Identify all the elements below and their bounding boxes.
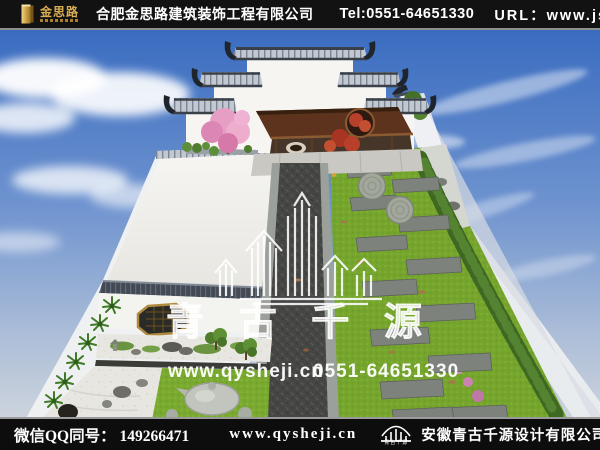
header-telephone: Tel:0551-64651330 <box>340 6 475 22</box>
logo-subline <box>40 19 80 22</box>
footer-qq: 微信QQ同号： 149266471 <box>14 424 189 446</box>
watermark-site: www.qysheji.cn <box>167 361 324 382</box>
watermark-brand: 青 古 千 源 <box>166 302 434 344</box>
qq-label: 微信QQ同号： <box>14 428 116 445</box>
promo-image: 金思路 合肥金思路建筑装饰工程有限公司 Tel:0551-64651330 UR… <box>0 0 600 450</box>
footer-company-name: 安徽青古千源设计有限公司 <box>421 424 600 445</box>
footer-bar: 微信QQ同号： 149266471 www.qysheji.cn 青古千源 安徽… <box>0 417 600 450</box>
header-company-name: 合肥金思路建筑装饰工程有限公司 <box>96 4 314 24</box>
header-bar: 金思路 合肥金思路建筑装饰工程有限公司 Tel:0551-64651330 UR… <box>0 0 600 30</box>
millstone <box>386 196 414 224</box>
scene-svg: 青 古 千 源 www.qysheji.cn 0551-64651330 <box>0 30 600 417</box>
pagoda-logo-caption: 青古千源 <box>384 441 408 446</box>
url-value: www.jslu.cn <box>547 8 600 24</box>
watermark-phone: 0551-64651330 <box>313 361 459 382</box>
footer-website: www.qysheji.cn <box>229 426 357 443</box>
millstone <box>358 172 386 200</box>
jinsilu-logo: 金思路 <box>20 3 86 25</box>
gold-pillar-icon <box>20 3 35 25</box>
qinggu-logo: 青古千源 <box>379 423 413 446</box>
header-url: URL：www.jslu.cn <box>494 4 600 25</box>
courtyard-render: 青 古 千 源 www.qysheji.cn 0551-64651330 <box>0 30 600 417</box>
logo-text: 金思路 <box>40 6 86 18</box>
qq-number: 149266471 <box>120 428 190 445</box>
url-label: URL： <box>494 8 546 24</box>
